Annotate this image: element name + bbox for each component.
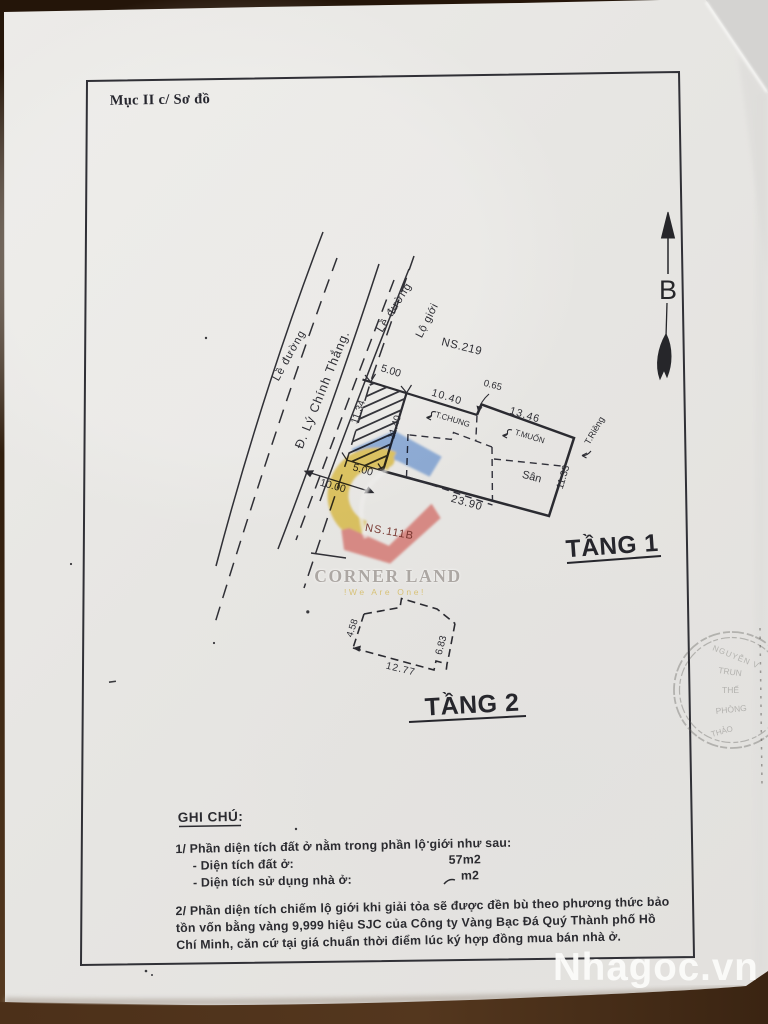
- svg-text:THẾ: THẾ: [722, 685, 739, 695]
- svg-text:Mục II c/ Sơ đồ: Mục II c/ Sơ đồ: [110, 91, 211, 109]
- svg-text:- Diện tích đất ở:: - Diện tích đất ở:: [193, 857, 294, 873]
- svg-text:m2: m2: [461, 868, 479, 882]
- svg-text:57m2: 57m2: [449, 852, 482, 867]
- svg-text:!We Are One!: !We Are One!: [344, 587, 426, 597]
- svg-text:B: B: [659, 275, 677, 305]
- svg-text:CORNER LAND: CORNER LAND: [314, 566, 461, 586]
- svg-text:GHI CHÚ:: GHI CHÚ:: [178, 809, 244, 825]
- svg-text:Nhagoc.vn: Nhagoc.vn: [553, 946, 759, 989]
